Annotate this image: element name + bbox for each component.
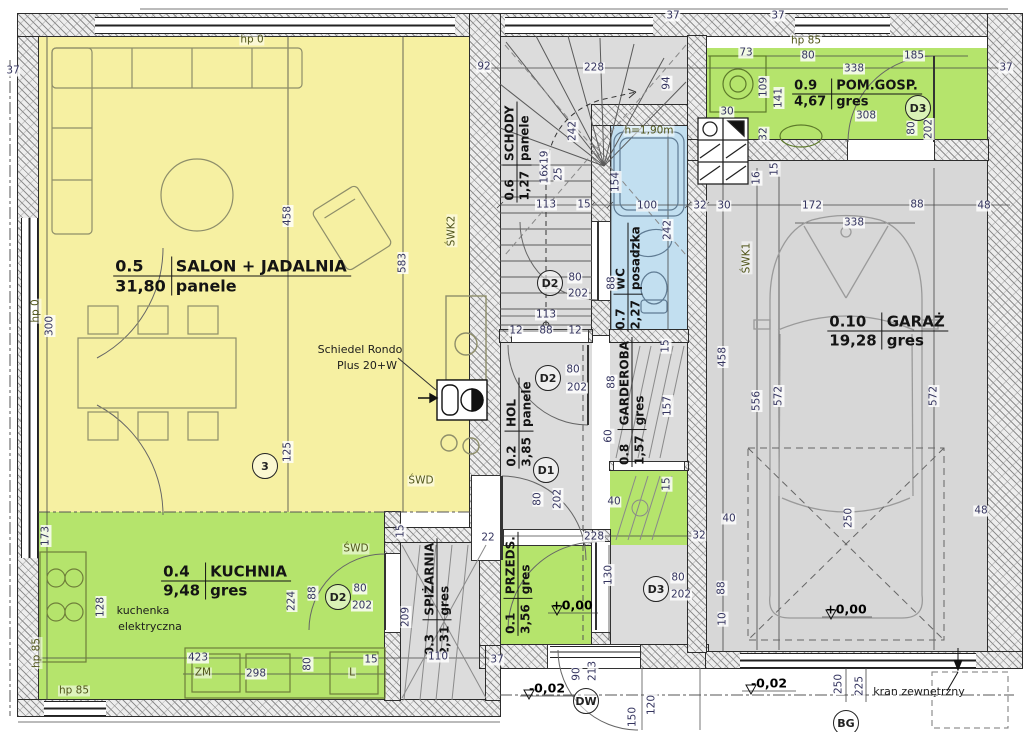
room-name: POM.GOSP. bbox=[831, 79, 922, 95]
room-name: HOL bbox=[505, 377, 520, 432]
room-name: GARAŻ bbox=[882, 313, 949, 332]
room-id: 0.4 bbox=[161, 563, 205, 582]
dimension-label: 225 bbox=[854, 675, 865, 697]
wall-schody-wc bbox=[592, 105, 610, 335]
label-kuchnia: 0.4 KUCHNIA 9,48 gres bbox=[161, 563, 291, 600]
room-name: SPIŻARNIA bbox=[423, 539, 438, 621]
label-schody: 0.6 SCHODY 1,27 panele bbox=[503, 101, 532, 202]
room-area: 3,85 bbox=[520, 432, 534, 469]
opening-pomgosp-garaz bbox=[848, 140, 934, 160]
label-pomgosp: 0.9 POM.GOSP. 4,67 gres bbox=[792, 79, 922, 110]
dimension-label: 250 bbox=[833, 673, 844, 695]
room-id: 0.10 bbox=[827, 313, 881, 332]
room-floor: gres bbox=[519, 532, 533, 599]
label-salon: 0.5 SALON + JADALNIA 31,80 panele bbox=[113, 257, 351, 296]
level-label: -0,02 bbox=[750, 676, 788, 689]
level-label: -0,02 bbox=[528, 681, 566, 694]
dimension-label: 150 bbox=[627, 706, 638, 728]
room-name: SALON + JADALNIA bbox=[171, 257, 351, 277]
room-garaz bbox=[706, 160, 988, 652]
label-garderoba: 0.8 GARDEROBA 1,57 gres bbox=[618, 337, 647, 467]
room-area: 3,56 bbox=[519, 599, 533, 636]
opening-hol-schody bbox=[512, 330, 588, 342]
room-floor: panele bbox=[171, 277, 351, 296]
dimension-label: 90 bbox=[571, 666, 582, 681]
room-id: 0.3 bbox=[423, 621, 438, 658]
window-kuchnia-bottom bbox=[44, 701, 106, 716]
room-floor: gres bbox=[633, 337, 647, 430]
room-area: 1,57 bbox=[633, 430, 647, 467]
wall-salon-center bbox=[470, 14, 500, 530]
opening-przeds-garaz bbox=[592, 542, 610, 632]
door-tag-dw: DW bbox=[573, 688, 599, 714]
room-floor: gres bbox=[831, 95, 922, 110]
room-name: WC bbox=[614, 222, 629, 295]
window-schody-top bbox=[505, 17, 653, 34]
room-floor: posadzka bbox=[629, 222, 643, 295]
annotation-label: hp 85 bbox=[790, 35, 822, 46]
dimension-label: 120 bbox=[646, 694, 657, 716]
room-id: 0.7 bbox=[614, 295, 629, 332]
room-floor: gres bbox=[438, 539, 452, 621]
room-area: 2,27 bbox=[629, 295, 643, 332]
room-area: 4,67 bbox=[792, 95, 831, 110]
label-garaz: 0.10 GARAŻ 19,28 gres bbox=[827, 313, 948, 350]
room-id: 0.2 bbox=[505, 432, 520, 469]
door-tag-bg: BG bbox=[833, 710, 859, 732]
room-schody-landing bbox=[592, 36, 688, 105]
room-name: SCHODY bbox=[503, 101, 518, 165]
note-label: kran zewnętrzny bbox=[872, 686, 965, 698]
room-area: 1,27 bbox=[518, 166, 532, 203]
label-spizarnia: 0.3 SPIŻARNIA 2,31 gres bbox=[423, 539, 452, 658]
label-przedsionek: 0.1 PRZEDS. 3,56 gres bbox=[504, 532, 533, 636]
room-area: 9,48 bbox=[161, 582, 205, 600]
room-area: 2,31 bbox=[438, 621, 452, 658]
label-hol: 0.2 HOL 3,85 panele bbox=[505, 377, 534, 468]
wall-center-garage bbox=[688, 36, 706, 652]
room-name: PRZEDS. bbox=[504, 532, 519, 599]
label-wc: 0.7 WC 2,27 posadzka bbox=[614, 222, 643, 331]
room-garage-access bbox=[610, 545, 688, 645]
room-area: 19,28 bbox=[827, 332, 881, 350]
opening-salon-hol bbox=[472, 476, 500, 560]
room-id: 0.1 bbox=[504, 599, 519, 636]
window-terrace-door bbox=[21, 218, 38, 558]
room-kuchnia bbox=[38, 512, 385, 700]
room-name: KUCHNIA bbox=[205, 563, 291, 582]
floor-plan: 0.5 SALON + JADALNIA 31,80 panele 0.4 KU… bbox=[0, 0, 1024, 732]
room-id: 0.6 bbox=[503, 166, 518, 203]
room-floor: gres bbox=[205, 582, 291, 600]
room-floor: panele bbox=[520, 377, 534, 432]
entrance-door-leaf bbox=[550, 646, 640, 658]
room-floor: panele bbox=[518, 101, 532, 165]
room-area: 31,80 bbox=[113, 277, 171, 296]
opening-kuchnia bbox=[385, 554, 400, 632]
room-name: GARDEROBA bbox=[618, 337, 633, 430]
wall-right-outer bbox=[988, 14, 1022, 668]
room-przedsionek-strip bbox=[610, 470, 688, 545]
opening-wc bbox=[592, 222, 610, 300]
room-id: 0.8 bbox=[618, 430, 633, 467]
room-floor: gres bbox=[882, 332, 949, 350]
wall-pomgosp-bottom bbox=[688, 140, 988, 160]
garage-gate bbox=[740, 653, 976, 668]
window-salon-top bbox=[95, 17, 455, 34]
room-id: 0.9 bbox=[792, 79, 831, 95]
window-pomgosp-top bbox=[795, 17, 890, 34]
room-id: 0.5 bbox=[113, 257, 171, 277]
